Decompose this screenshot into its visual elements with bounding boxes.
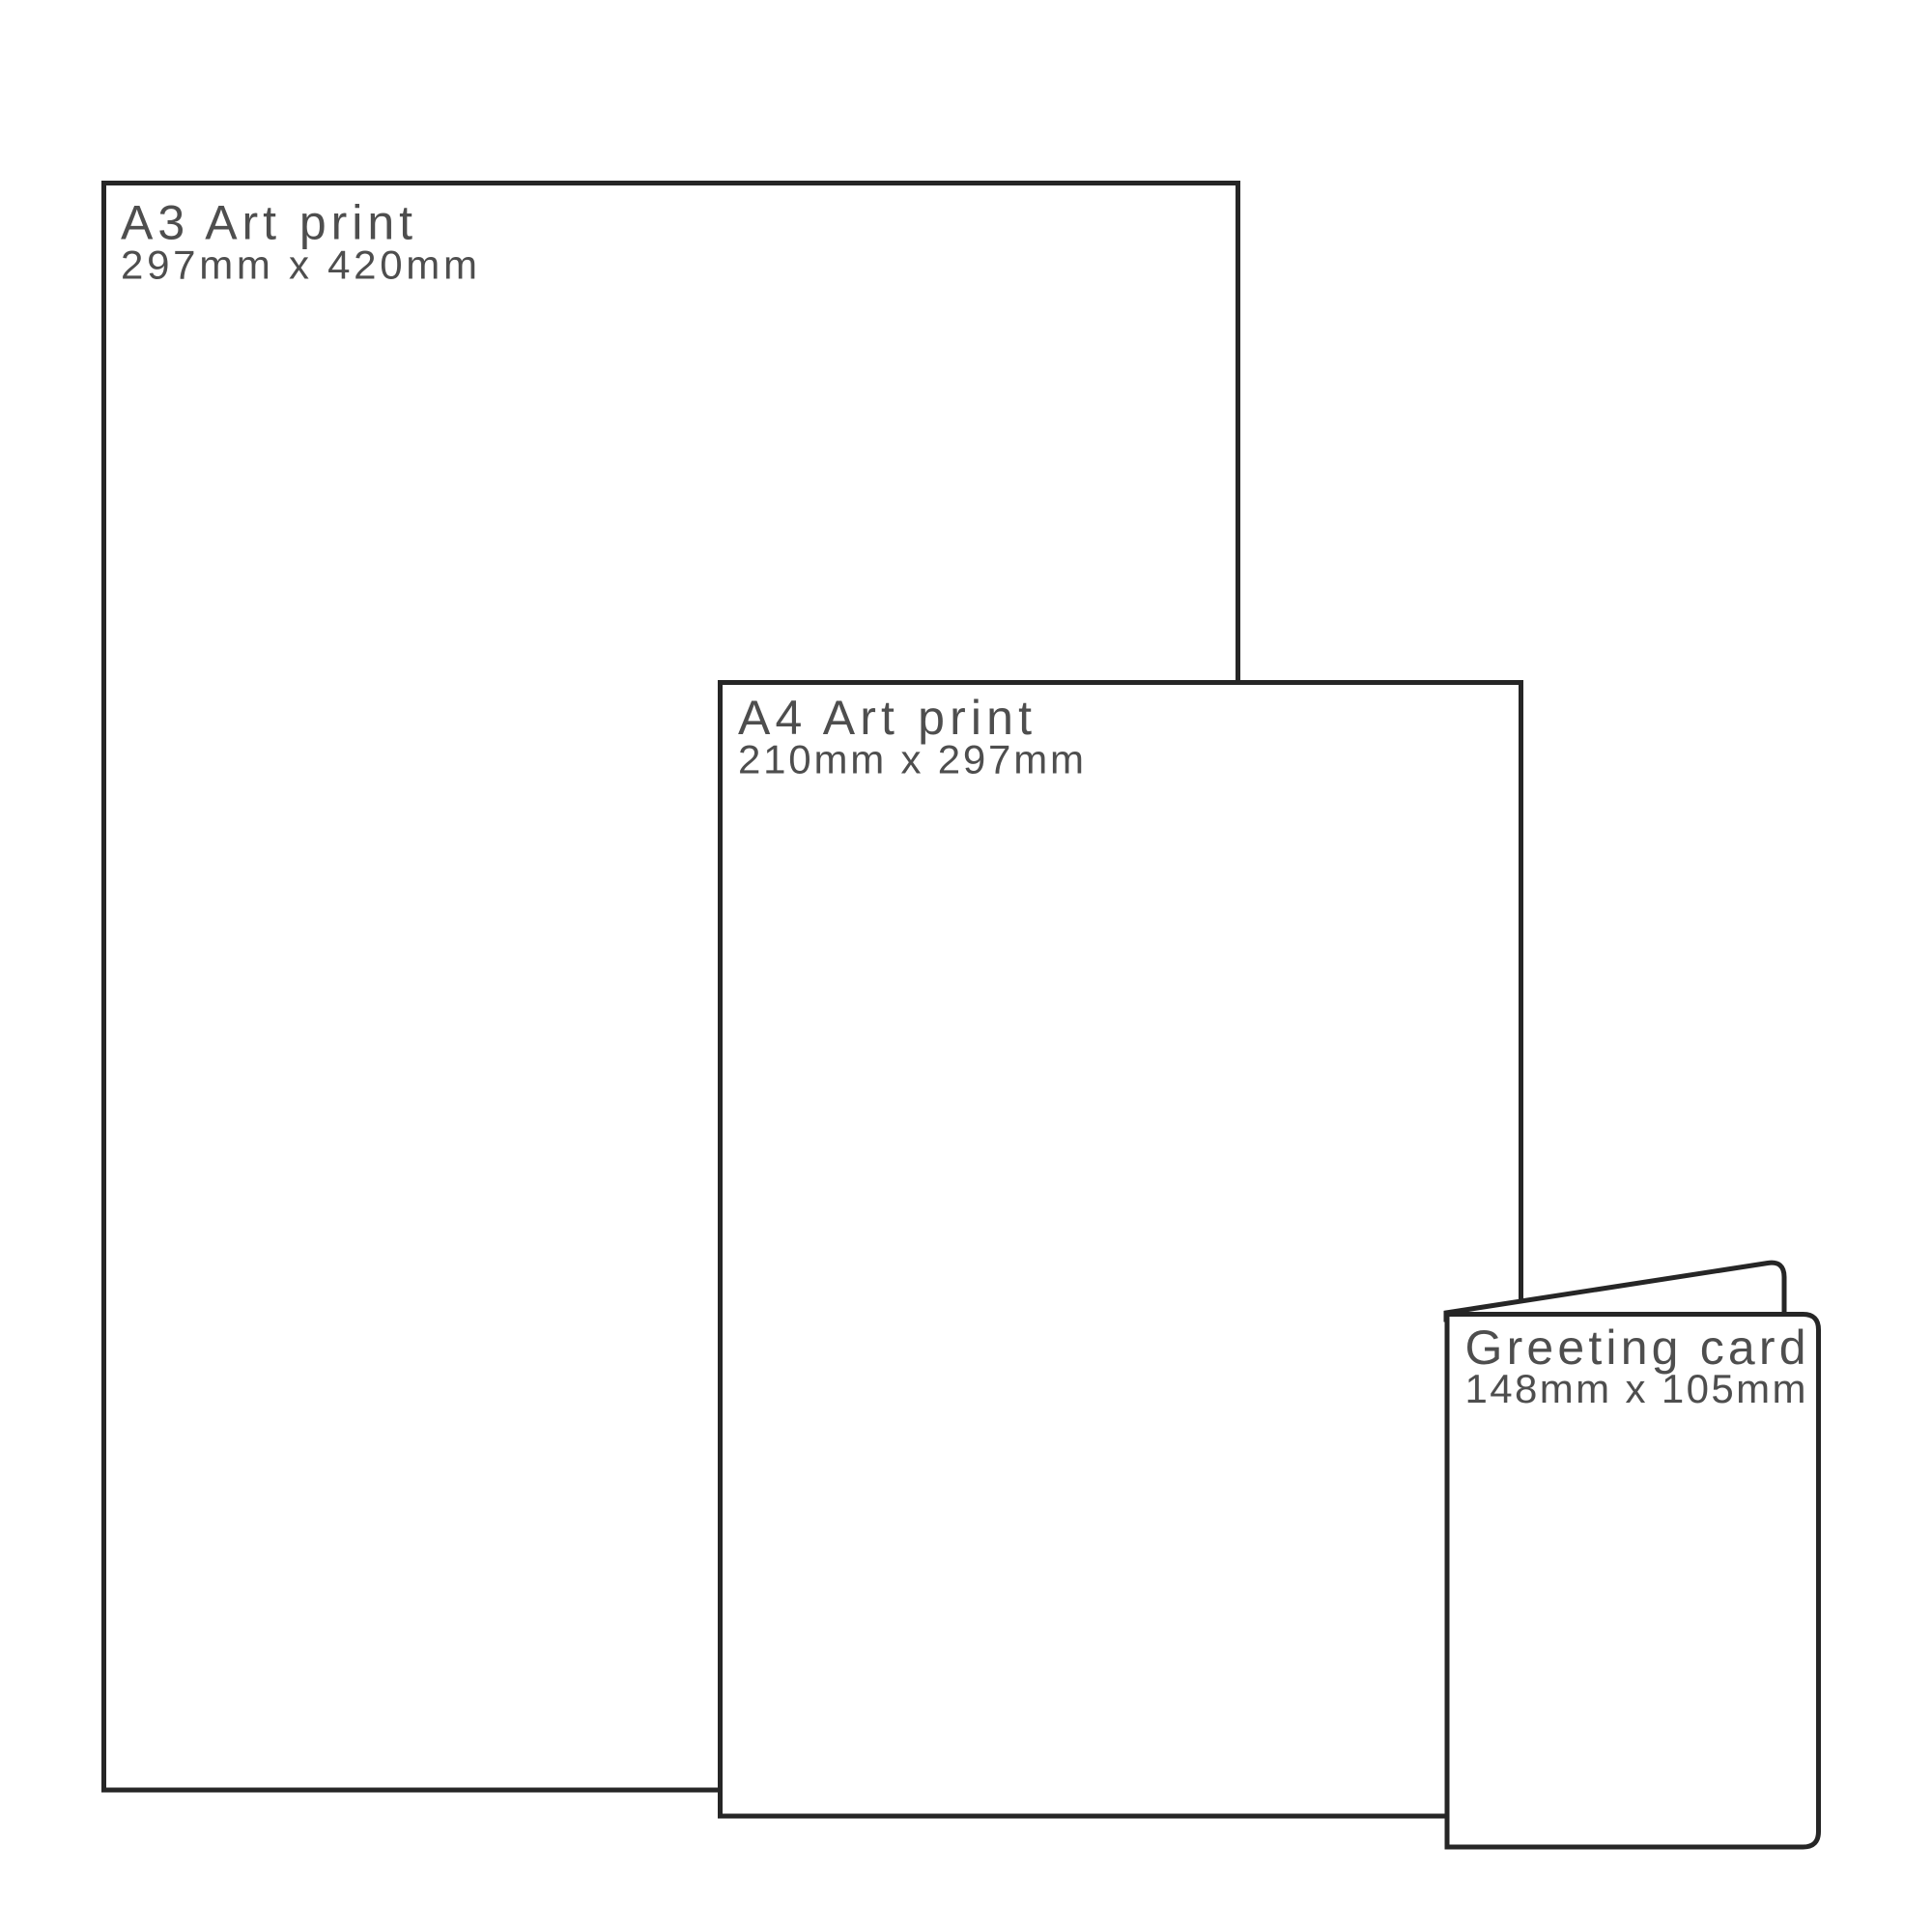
svg-text:297mm x 420mm: 297mm x 420mm [121,242,477,288]
svg-text:148mm x 105mm: 148mm x 105mm [1465,1366,1806,1411]
svg-text:210mm x 297mm: 210mm x 297mm [738,737,1084,782]
